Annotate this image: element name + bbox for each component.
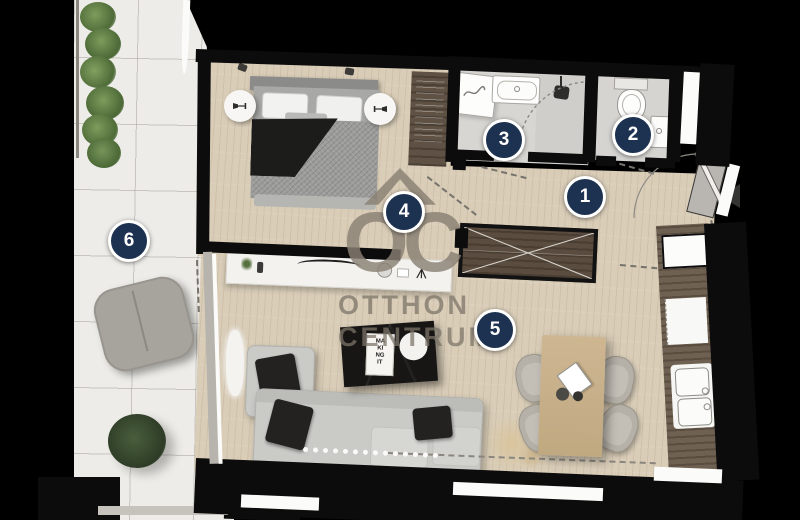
cooktop (665, 297, 708, 345)
wall-wc-bottom-b (645, 157, 675, 168)
sofa-pillow (264, 398, 314, 451)
faucet-dot-icon (656, 128, 662, 134)
wall-hall-bedroom-stub (455, 228, 469, 248)
planter-box (76, 0, 79, 158)
nightstand (364, 93, 396, 125)
shrub-icon (85, 28, 121, 60)
bedroom-wardrobe (408, 71, 450, 166)
round-tray-icon (399, 331, 429, 361)
kitchen-sink (670, 363, 715, 429)
room-marker-1-number: 1 (580, 186, 591, 208)
wall-wc-bottom-a (596, 156, 616, 167)
living-window (654, 467, 723, 484)
magazine: MA KI NG IT (365, 333, 394, 376)
wall-hall-bedroom-stub (453, 150, 467, 170)
hanging-clothes-icon (414, 79, 444, 142)
room-marker-6: 6 (108, 220, 150, 262)
round-mirror-icon (377, 262, 393, 278)
fluffy-rug (226, 330, 244, 396)
room-marker-5-number: 5 (490, 319, 501, 341)
coffee-table: MA KI NG IT (340, 321, 438, 387)
sprig-plant-icon (241, 256, 253, 271)
decor-box-icon (397, 268, 409, 277)
table-lamp-icon (232, 100, 248, 112)
sink-basin (677, 397, 712, 427)
fridge (661, 233, 709, 269)
magazine-text: MA KI NG IT (367, 338, 394, 367)
room-marker-2: 2 (612, 114, 654, 156)
wall-lamp-icon (344, 67, 354, 75)
room-marker-4: 4 (383, 191, 425, 233)
hall-built-in-closet (458, 223, 598, 283)
potted-plant-icon (108, 414, 166, 468)
room-marker-3: 3 (483, 119, 525, 161)
closet-cross-lines (462, 227, 594, 279)
room-marker-1: 1 (564, 176, 606, 218)
shrub-icon (80, 56, 116, 88)
nightstand (224, 90, 256, 122)
floor-plan-canvas: MA KI NG IT OC OTTHON (0, 0, 800, 520)
shrub-icon (87, 138, 121, 168)
decor-arc-icon (297, 258, 361, 272)
sofa-pillow (412, 405, 453, 440)
room-marker-3-number: 3 (499, 129, 510, 151)
dining-table (538, 335, 606, 457)
room-marker-6-number: 6 (124, 230, 135, 252)
room-marker-5: 5 (474, 309, 516, 351)
washing-machine-hose-icon (454, 81, 496, 106)
bowl-icon (573, 391, 583, 401)
bowl-icon (556, 387, 569, 400)
table-lamp-icon (372, 103, 388, 115)
figurine-icon (257, 262, 263, 273)
room-marker-2-number: 2 (628, 124, 639, 146)
room-marker-4-number: 4 (399, 201, 410, 223)
wall-bedroom-left (196, 52, 211, 254)
tripod-stool-icon (415, 267, 428, 280)
toilet-seat (622, 94, 642, 117)
